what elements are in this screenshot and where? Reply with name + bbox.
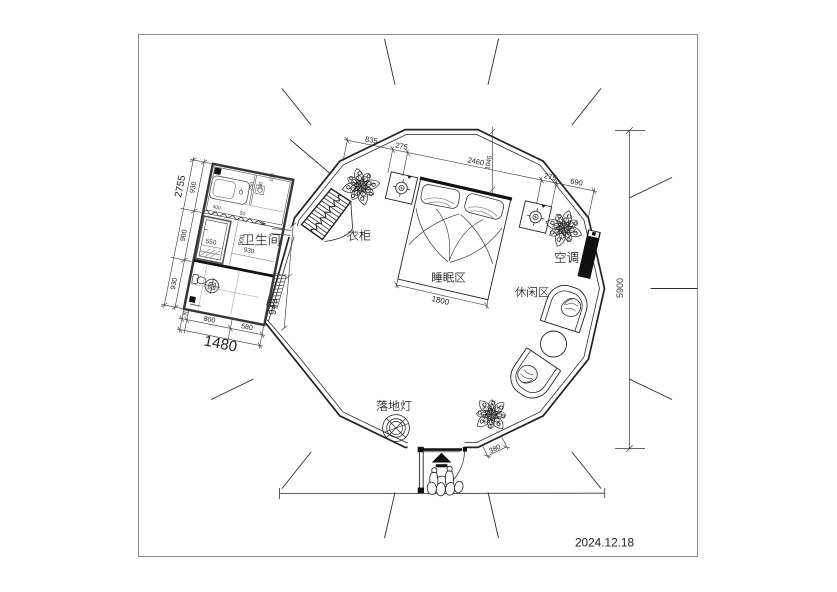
svg-text:5900: 5900	[615, 278, 625, 298]
svg-text:90: 90	[182, 311, 189, 318]
svg-text:945: 945	[268, 297, 281, 315]
svg-text:2024.12.18: 2024.12.18	[575, 536, 634, 550]
